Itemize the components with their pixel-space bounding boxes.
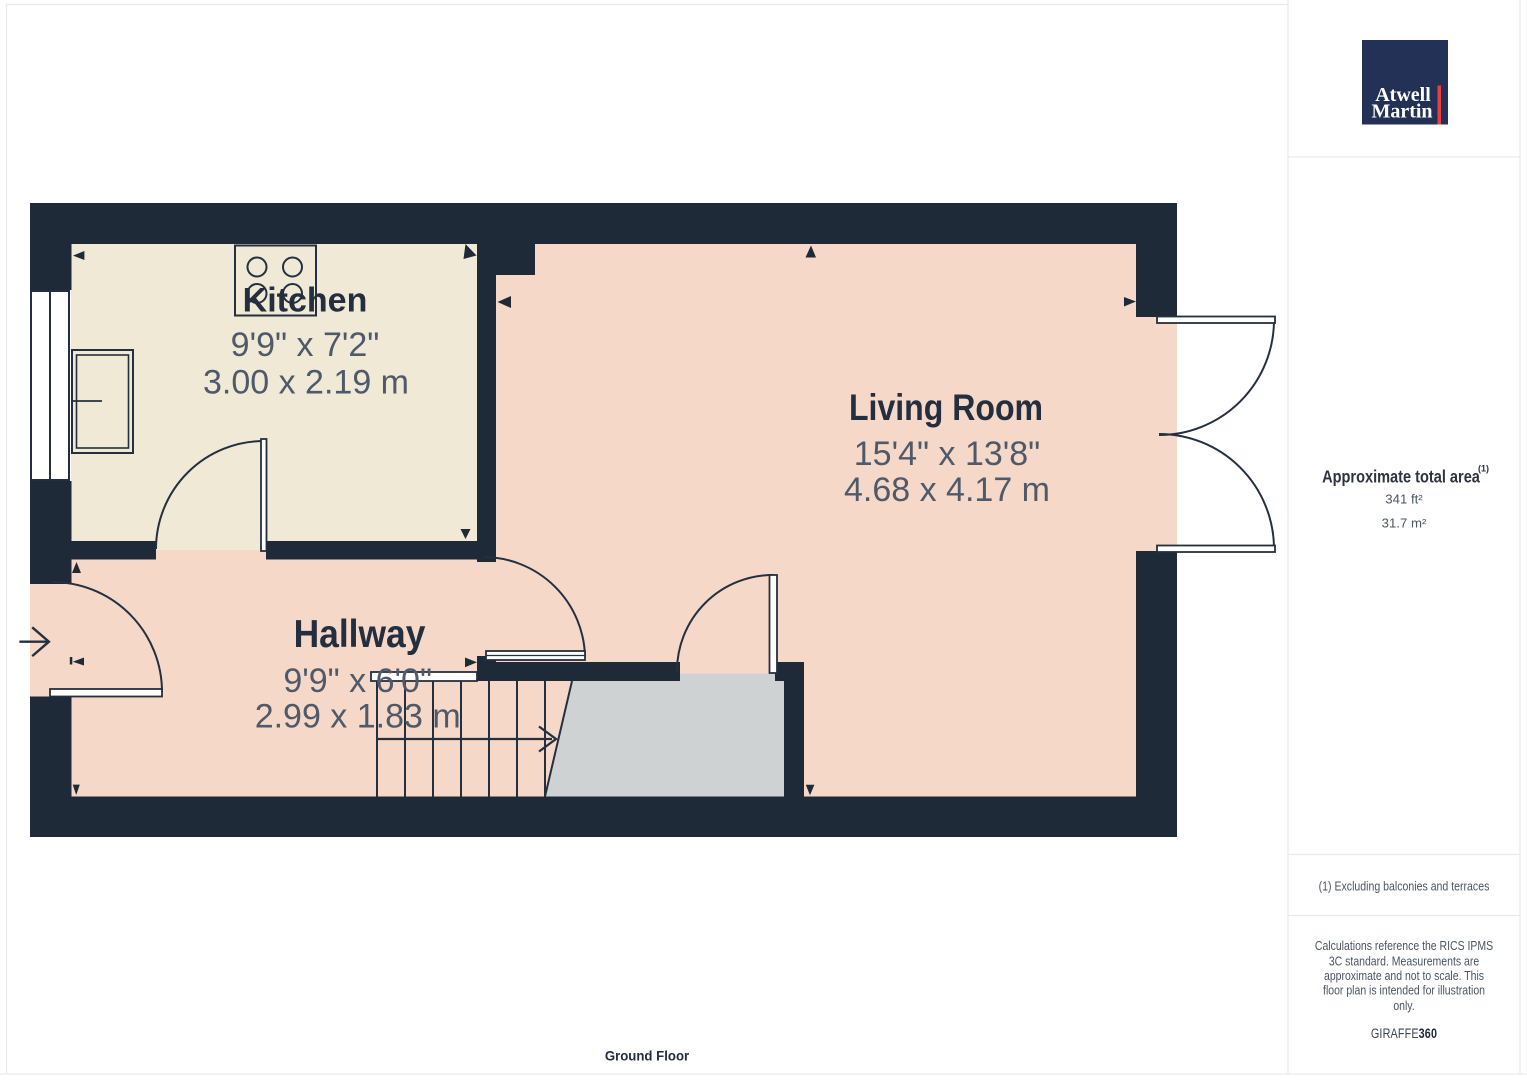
svg-text:Calculations reference the RIC: Calculations reference the RICS IPMS — [1315, 939, 1493, 953]
svg-text:9'9" x 6'0": 9'9" x 6'0" — [283, 662, 432, 700]
svg-text:Living Room: Living Room — [849, 387, 1043, 429]
svg-text:Hallway: Hallway — [294, 613, 426, 656]
svg-text:(1) Excluding balconies and te: (1) Excluding balconies and terraces — [1319, 881, 1490, 894]
svg-text:floor plan is intended for ill: floor plan is intended for illustration — [1323, 984, 1485, 998]
svg-text:approximate and not to scale.: approximate and not to scale. This — [1324, 969, 1484, 983]
svg-text:Martin: Martin — [1371, 101, 1432, 123]
svg-text:only.: only. — [1393, 999, 1414, 1013]
svg-text:GIRAFFE360: GIRAFFE360 — [1371, 1026, 1437, 1042]
svg-text:(1): (1) — [1478, 464, 1489, 474]
svg-text:2.99 x 1.83 m: 2.99 x 1.83 m — [255, 697, 461, 735]
svg-text:341 ft²: 341 ft² — [1385, 492, 1423, 507]
svg-text:15'4" x 13'8": 15'4" x 13'8" — [854, 435, 1040, 473]
svg-text:3.00 x 2.19 m: 3.00 x 2.19 m — [203, 363, 409, 401]
svg-text:Approximate total area: Approximate total area — [1322, 467, 1481, 487]
svg-text:4.68 x 4.17 m: 4.68 x 4.17 m — [844, 471, 1050, 509]
svg-text:9'9" x 7'2": 9'9" x 7'2" — [231, 326, 380, 364]
svg-text:3C standard. Measurements are: 3C standard. Measurements are — [1329, 955, 1479, 969]
svg-text:31.7 m²: 31.7 m² — [1382, 516, 1427, 531]
svg-text:Ground Floor: Ground Floor — [605, 1048, 690, 1064]
svg-text:Kitchen: Kitchen — [243, 282, 368, 320]
